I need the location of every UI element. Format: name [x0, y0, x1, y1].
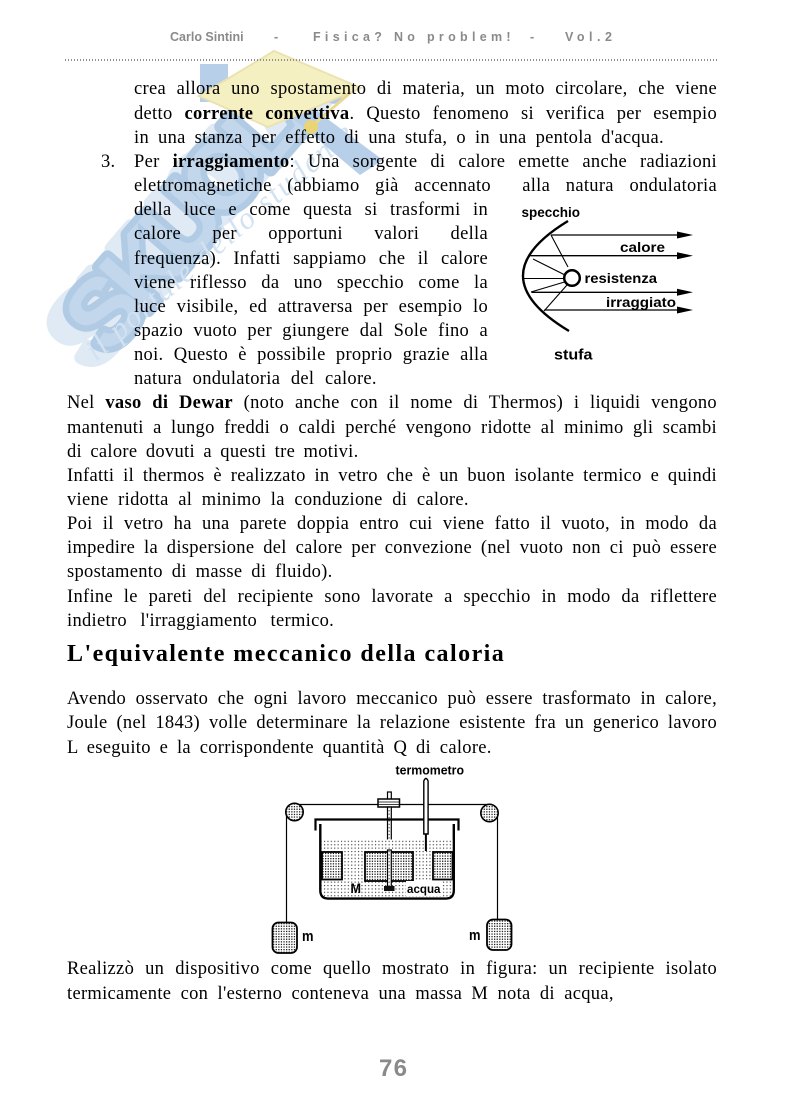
svg-text:m: m	[302, 928, 314, 945]
svg-text:m: m	[469, 927, 481, 944]
svg-text:specchio: specchio	[522, 204, 581, 220]
svg-text:stufa: stufa	[554, 347, 593, 364]
svg-text:resistenza: resistenza	[585, 270, 658, 286]
svg-text:calore: calore	[620, 239, 665, 255]
svg-text:termometro: termometro	[396, 763, 465, 778]
svg-text:acqua: acqua	[407, 882, 441, 896]
svg-text:M: M	[351, 881, 362, 896]
svg-text:irraggiato: irraggiato	[606, 294, 676, 310]
